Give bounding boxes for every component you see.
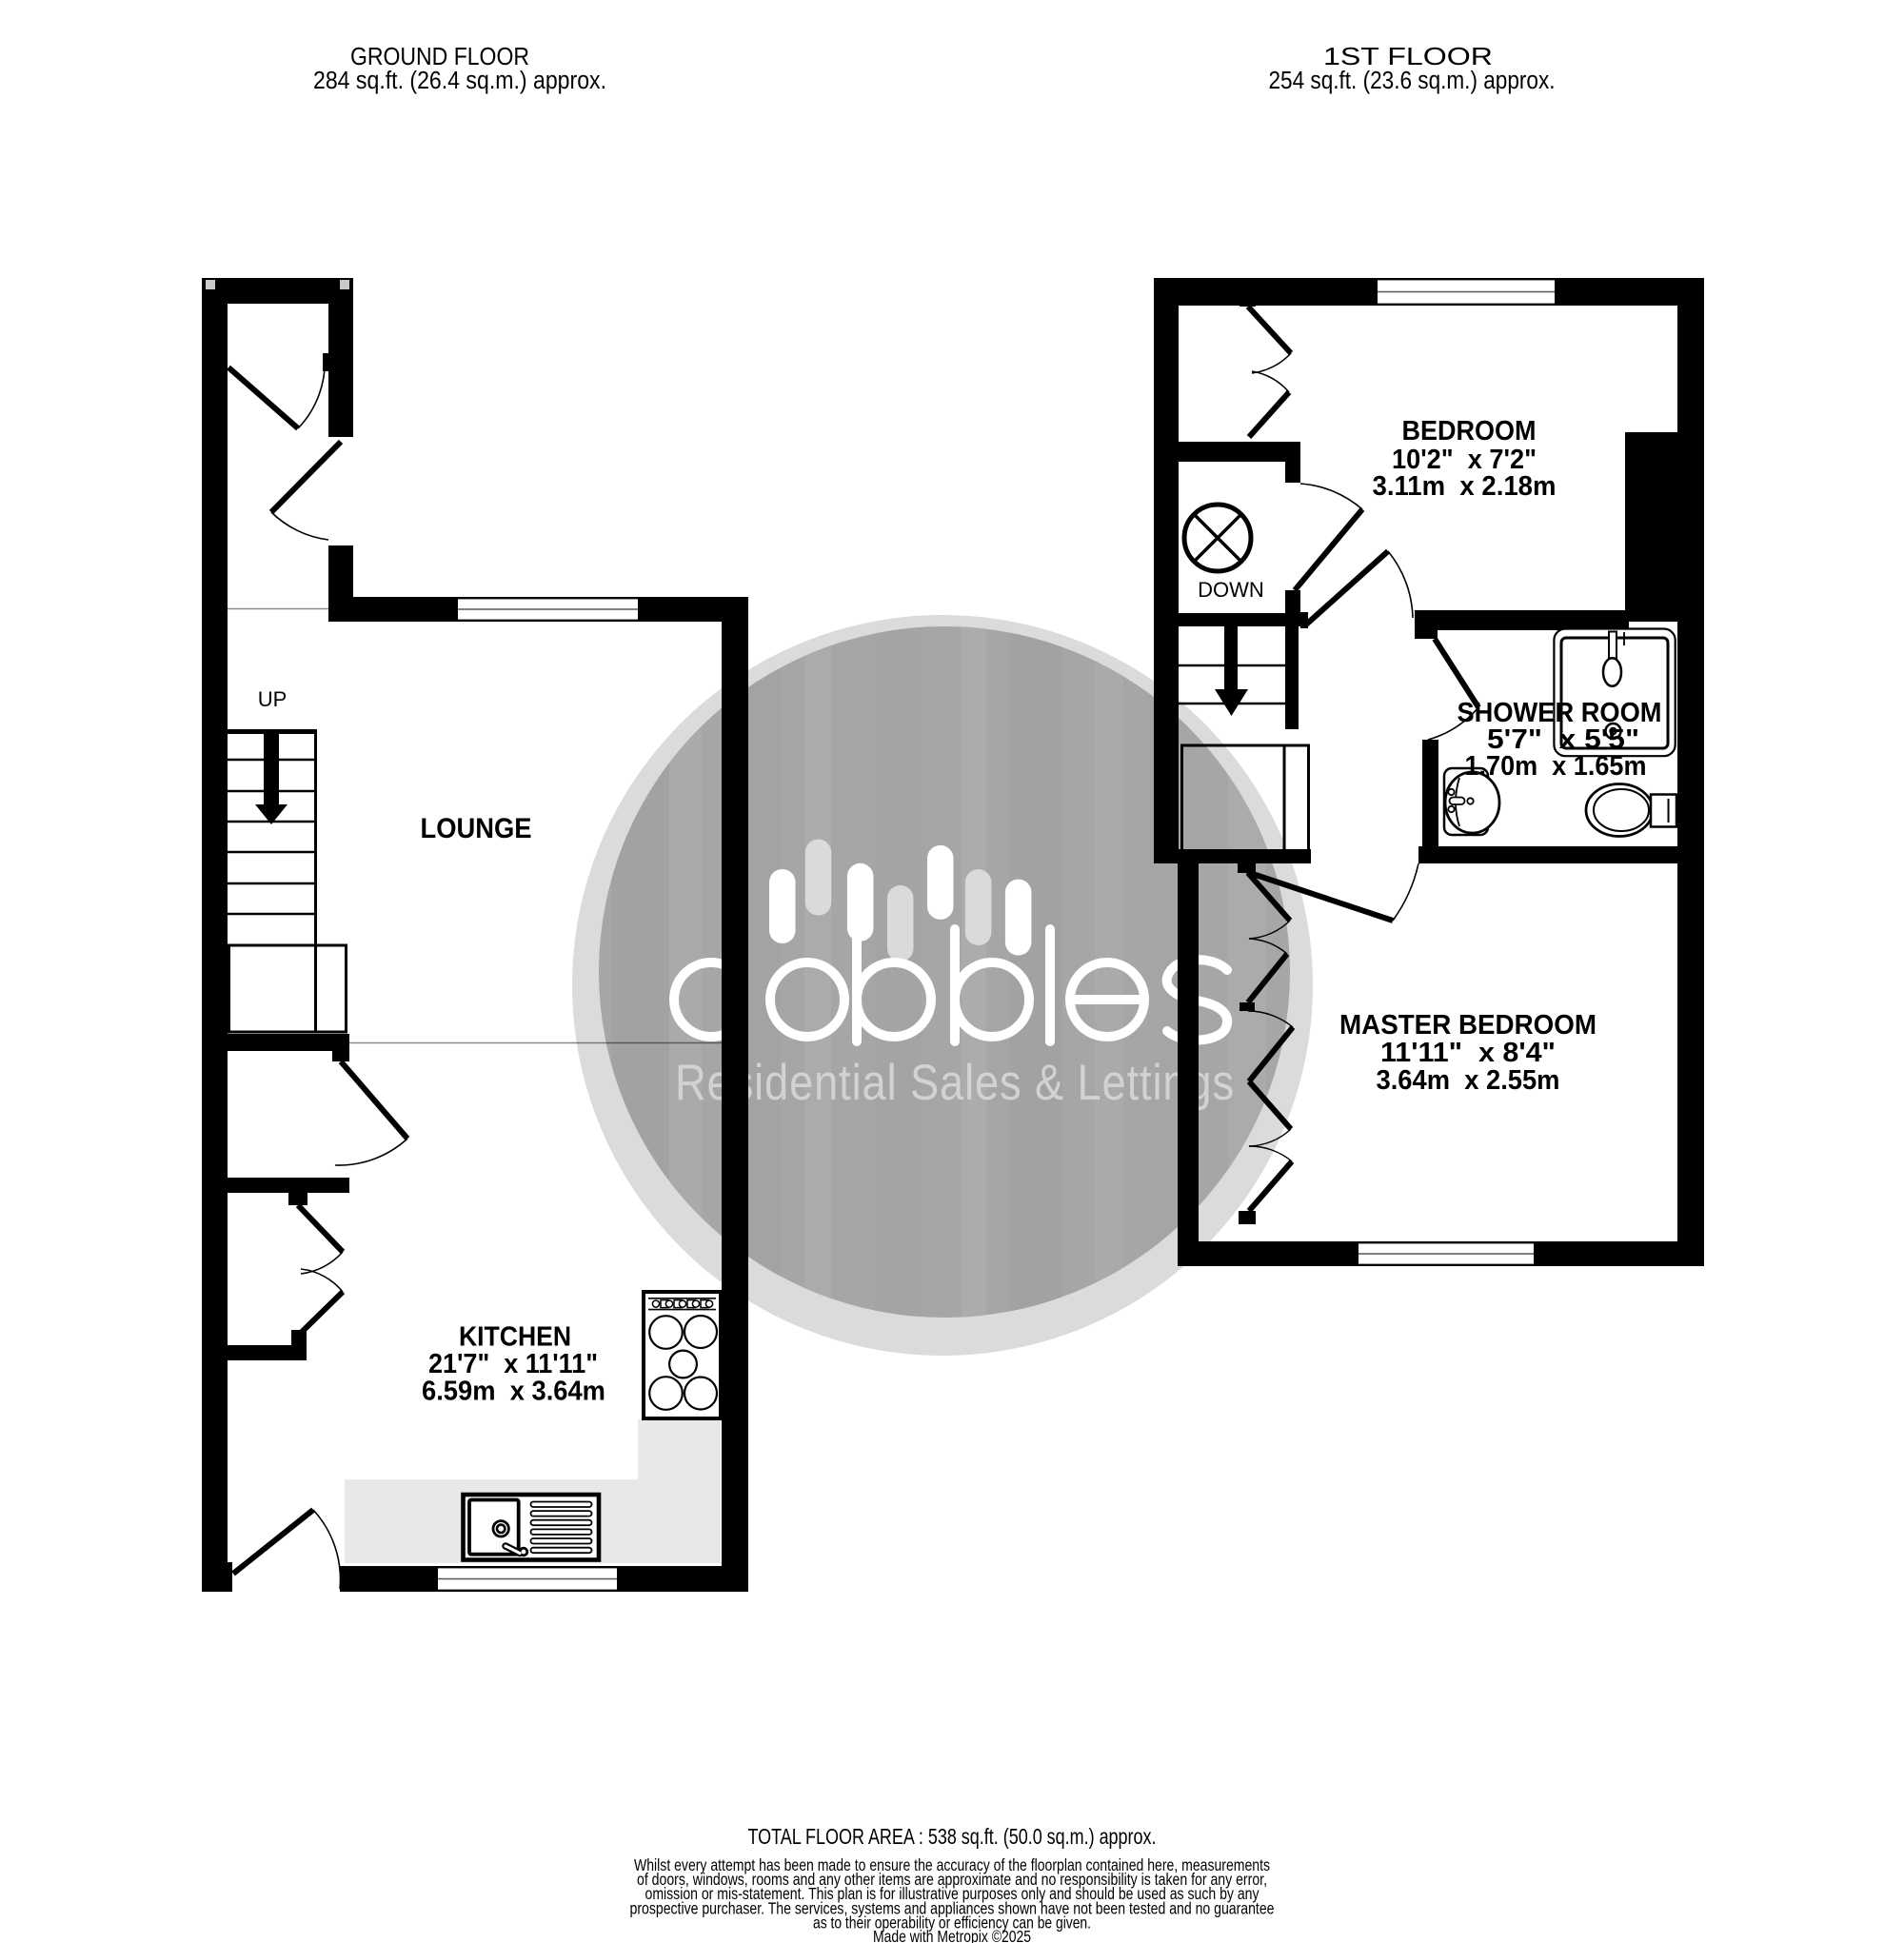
svg-text:6.59m x 3.64m: 6.59m x 3.64m: [422, 1376, 605, 1406]
svg-text:3.64m x 2.55m: 3.64m x 2.55m: [1377, 1065, 1560, 1096]
svg-text:DOWN: DOWN: [1198, 578, 1264, 602]
svg-text:1ST FLOOR: 1ST FLOOR: [1323, 44, 1493, 70]
svg-text:21'7" x 11'11": 21'7" x 11'11": [428, 1349, 598, 1379]
svg-text:11'11" x 8'4": 11'11" x 8'4": [1380, 1038, 1556, 1068]
svg-text:284 sq.ft. (26.4 sq.m.) approx: 284 sq.ft. (26.4 sq.m.) approx.: [313, 68, 606, 94]
svg-text:GROUND FLOOR: GROUND FLOOR: [350, 44, 529, 70]
svg-text:Residential Sales & Lettings: Residential Sales & Lettings: [675, 1055, 1235, 1111]
svg-text:3.11m x 2.18m: 3.11m x 2.18m: [1373, 471, 1557, 502]
svg-text:BEDROOM: BEDROOM: [1402, 416, 1537, 446]
svg-text:LOUNGE: LOUNGE: [421, 813, 532, 844]
svg-text:1.70m x 1.65m: 1.70m x 1.65m: [1465, 751, 1647, 782]
svg-text:UP: UP: [258, 687, 288, 711]
svg-text:254 sq.ft. (23.6 sq.m.) approx: 254 sq.ft. (23.6 sq.m.) approx.: [1269, 68, 1556, 94]
svg-text:TOTAL FLOOR AREA : 538 sq.ft.: TOTAL FLOOR AREA : 538 sq.ft. (50.0 sq.m…: [748, 1824, 1157, 1849]
svg-text:Made with Metropix ©2025: Made with Metropix ©2025: [873, 1927, 1031, 1943]
svg-text:KITCHEN: KITCHEN: [459, 1322, 571, 1353]
svg-text:MASTER BEDROOM: MASTER BEDROOM: [1339, 1010, 1597, 1041]
